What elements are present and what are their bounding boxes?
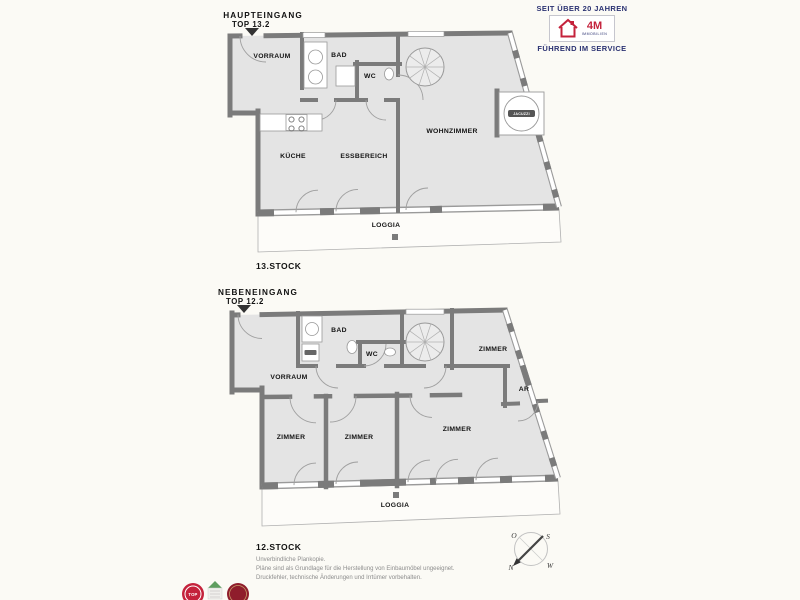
room-label-wc-12: WC bbox=[366, 351, 378, 358]
brand-block: SEIT ÜBER 20 JAHREN 4M IMMOBILIEN FÜHREN… bbox=[532, 4, 632, 53]
award-seals: TOP bbox=[182, 581, 249, 600]
floorplan-canvas: JACUZZI HAUPTEINGANG TOP 13.2 VORRAUM BA… bbox=[0, 0, 800, 600]
side-entrance-arrow-icon bbox=[237, 305, 251, 313]
award-seal-top-label: TOP bbox=[188, 592, 197, 597]
disclaimer-line-1: Unverbindliche Plankopie. bbox=[256, 556, 454, 565]
main-entrance-top-number: TOP 13.2 bbox=[232, 20, 270, 29]
compass-east-label: O bbox=[511, 531, 517, 540]
room-label-bad-12: BAD bbox=[331, 327, 347, 334]
room-label-kueche: KÜCHE bbox=[280, 151, 306, 160]
compass-icon: O S N W bbox=[507, 531, 553, 572]
disclaimer-block: Unverbindliche Plankopie. Pläne sind als… bbox=[256, 556, 454, 583]
compass-west-label: W bbox=[547, 561, 554, 570]
loggia-wall-stub-2 bbox=[393, 492, 399, 498]
room-label-zimmer-top: ZIMMER bbox=[479, 346, 508, 353]
side-entrance-top-number: TOP 12.2 bbox=[226, 297, 264, 306]
disclaimer-line-2: Pläne sind als Grundlage für die Herstel… bbox=[256, 565, 454, 574]
room-label-vorraum-13: VORRAUM bbox=[253, 53, 290, 60]
jacuzzi-label: JACUZZI bbox=[513, 112, 530, 116]
loggia-wall-stub bbox=[392, 234, 398, 240]
room-label-zimmer-right: ZIMMER bbox=[443, 426, 472, 433]
lower-top-windows bbox=[406, 309, 444, 314]
room-label-essbereich: ESSBEREICH bbox=[340, 153, 387, 160]
room-label-bad-13: BAD bbox=[331, 52, 347, 59]
compass-north-label: N bbox=[507, 563, 514, 572]
floor-label-12: 12.STOCK bbox=[256, 542, 302, 552]
brand-logo-text-group: 4M IMMOBILIEN bbox=[582, 21, 608, 36]
brand-logo: 4M IMMOBILIEN bbox=[549, 15, 615, 42]
brand-tagline-bottom: FÜHREND IM SERVICE bbox=[532, 44, 632, 53]
house-icon bbox=[557, 18, 579, 39]
brand-tagline-top: SEIT ÜBER 20 JAHREN bbox=[532, 4, 632, 13]
brand-sub-text: IMMOBILIEN bbox=[582, 32, 608, 36]
room-label-wohnzimmer: WOHNZIMMER bbox=[426, 128, 477, 135]
side-entrance-label: NEBENEINGANG bbox=[218, 288, 298, 297]
room-label-ar: AR bbox=[519, 386, 529, 393]
jacuzzi-icon: JACUZZI bbox=[499, 92, 544, 135]
spiral-stair-icon-2 bbox=[406, 323, 444, 361]
room-label-wc-13: WC bbox=[364, 73, 376, 80]
room-label-zimmer-left: ZIMMER bbox=[277, 434, 306, 441]
award-seal-house-icon bbox=[208, 581, 222, 599]
floor-label-13: 13.STOCK bbox=[256, 261, 302, 271]
disclaimer-line-3: Druckfehler, technische Änderungen und I… bbox=[256, 574, 454, 583]
brand-4m-text: 4M bbox=[582, 21, 608, 31]
room-label-loggia-12: LOGGIA bbox=[381, 502, 410, 509]
room-label-loggia-13: LOGGIA bbox=[372, 222, 401, 229]
main-entrance-arrow-icon bbox=[245, 28, 259, 36]
award-seal-top-icon: TOP bbox=[182, 583, 204, 600]
room-label-vorraum-12: VORRAUM bbox=[270, 374, 307, 381]
floorplan-sheet: JACUZZI HAUPTEINGANG TOP 13.2 VORRAUM BA… bbox=[0, 0, 800, 600]
stove-icon bbox=[260, 114, 322, 131]
main-entrance-label: HAUPTEINGANG bbox=[223, 11, 303, 20]
upper-floorplan: JACUZZI HAUPTEINGANG TOP 13.2 VORRAUM BA… bbox=[223, 11, 561, 271]
spiral-stair-icon bbox=[406, 48, 444, 86]
lower-floorplan: NEBENEINGANG TOP 12.2 VORRAUM BAD WC ZIM… bbox=[218, 288, 560, 552]
award-seal-round-icon bbox=[227, 583, 249, 600]
room-label-zimmer-mid: ZIMMER bbox=[345, 434, 374, 441]
compass-south-label: S bbox=[546, 532, 550, 541]
